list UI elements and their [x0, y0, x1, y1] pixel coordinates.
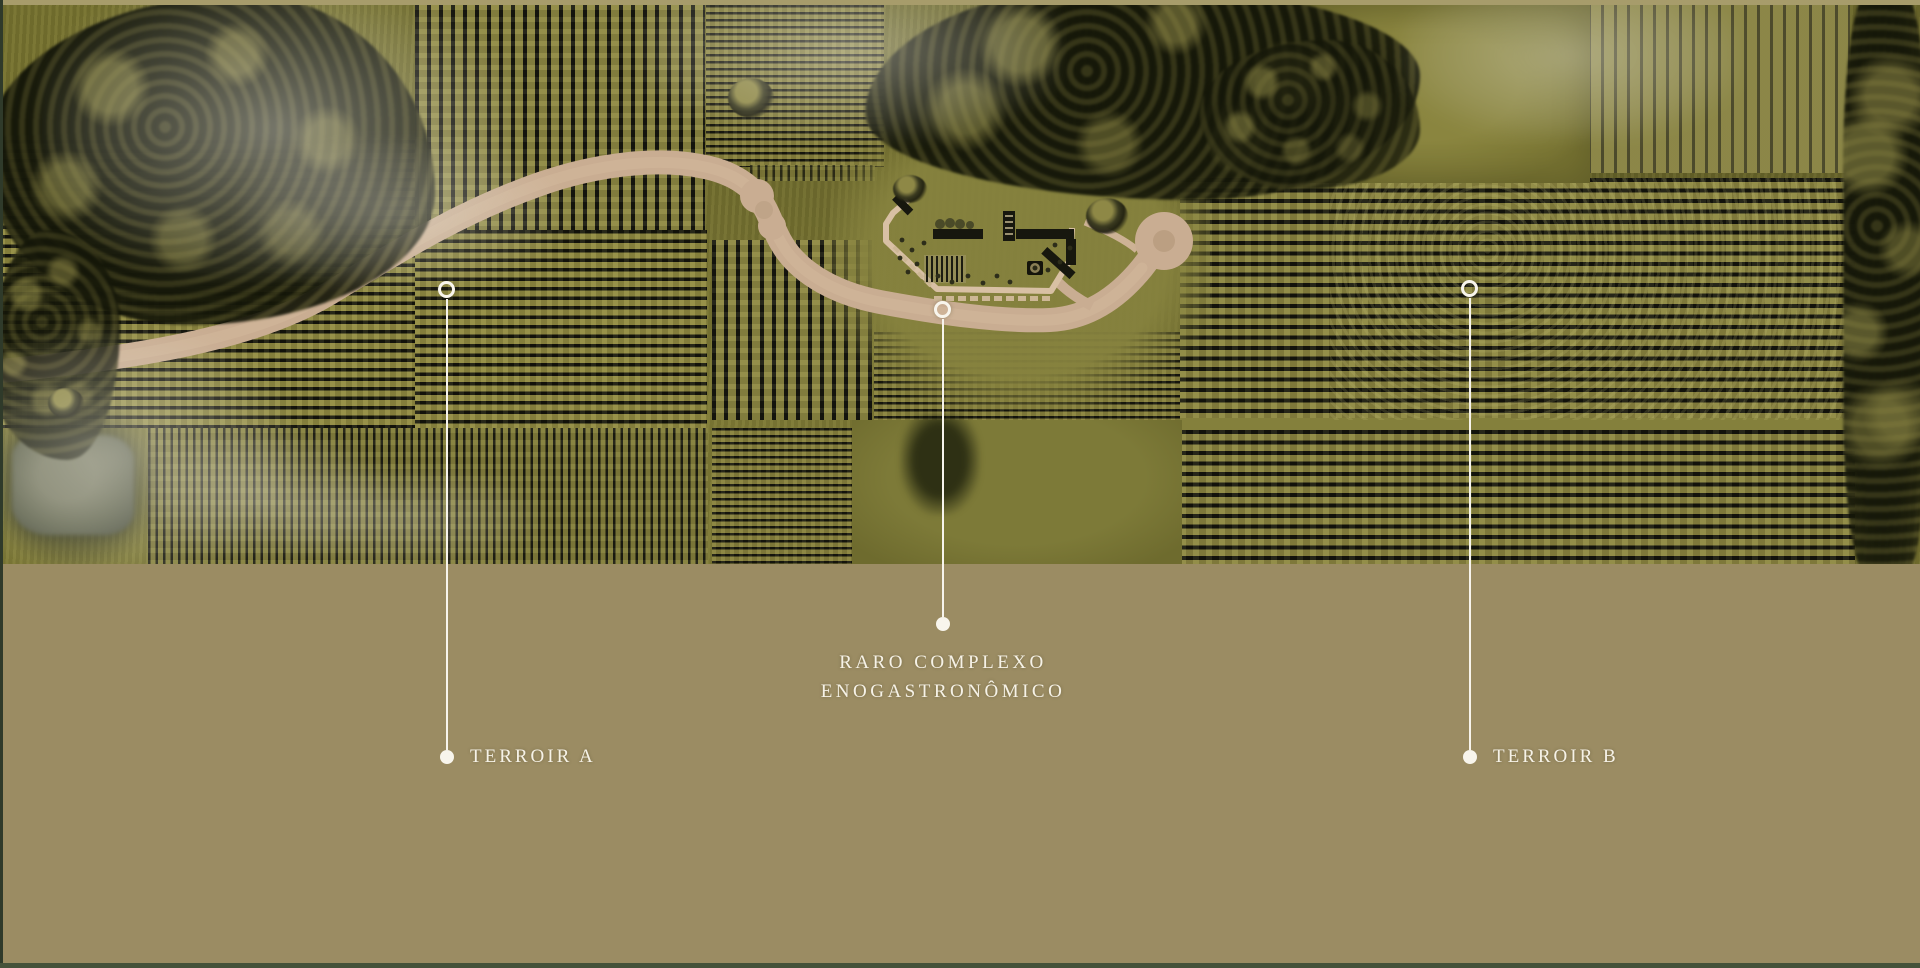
marker-ring[interactable] [1461, 280, 1478, 297]
winery-complex [886, 194, 1076, 301]
leader-line [446, 299, 448, 750]
marker-ring[interactable] [934, 301, 951, 318]
photo-top-edge [0, 0, 1920, 5]
label-complexo: RARO COMPLEXO ENOGASTRONÔMICO [821, 648, 1066, 706]
pergola [924, 255, 966, 283]
fog-patch [240, 140, 560, 290]
marker-dot[interactable] [936, 617, 950, 631]
tree [1086, 198, 1128, 234]
label-complexo-line1: RARO COMPLEXO [821, 648, 1066, 677]
leader-line [1469, 298, 1471, 750]
road-spur [1058, 282, 1092, 306]
vineyard-masterplan-section: TERROIR A RARO COMPLEXO ENOGASTRONÔMICO … [0, 0, 1920, 968]
winery-buildings [892, 194, 1076, 279]
tree-cluster [1200, 40, 1420, 190]
fog-patch [640, 0, 1060, 140]
fire-pit [1027, 261, 1043, 275]
roof-garden [935, 218, 974, 229]
page-left-edge [0, 0, 3, 968]
label-complexo-line2: ENOGASTRONÔMICO [821, 677, 1066, 706]
tree [893, 175, 927, 203]
fog-patch [1400, 0, 1740, 140]
marker-dot[interactable] [440, 750, 454, 764]
marker-dot[interactable] [1463, 750, 1477, 764]
aerial-photo [0, 0, 1920, 564]
label-terroir-a: TERROIR A [470, 746, 596, 768]
fog-patch [260, 470, 540, 564]
leader-line [942, 319, 944, 617]
page-bottom-edge [0, 963, 1920, 968]
marker-ring[interactable] [438, 281, 455, 298]
terrace-outline [886, 200, 1072, 291]
tree-shadow [900, 415, 980, 515]
tree-line [1843, 0, 1920, 564]
label-terroir-b: TERROIR B [1493, 746, 1619, 768]
